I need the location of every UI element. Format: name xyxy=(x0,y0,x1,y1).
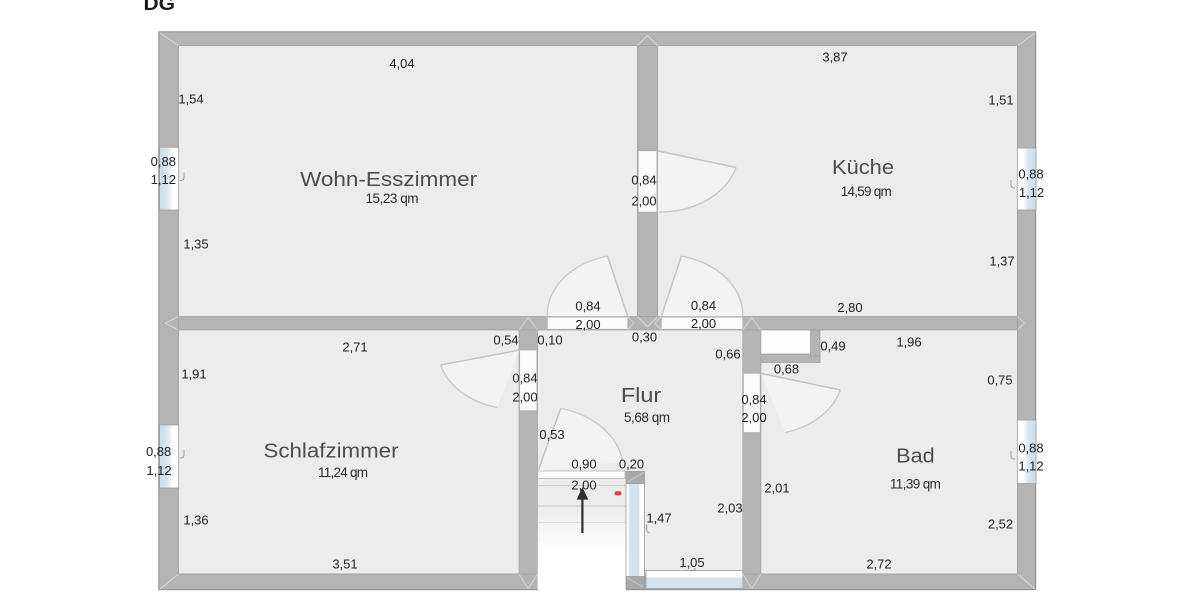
svg-text:0,54: 0,54 xyxy=(493,333,518,348)
svg-text:0,88: 0,88 xyxy=(146,444,171,459)
svg-text:1,05: 1,05 xyxy=(679,555,704,570)
svg-text:0,84: 0,84 xyxy=(575,299,600,314)
svg-text:2,52: 2,52 xyxy=(988,517,1013,532)
svg-text:0,20: 0,20 xyxy=(619,457,644,472)
svg-text:0,90: 0,90 xyxy=(571,457,596,472)
svg-text:11,24 qm: 11,24 qm xyxy=(318,465,368,480)
svg-text:0,84: 0,84 xyxy=(512,371,537,386)
svg-text:0,88: 0,88 xyxy=(1018,166,1043,181)
svg-text:1,96: 1,96 xyxy=(896,335,921,350)
svg-text:0,68: 0,68 xyxy=(774,362,799,377)
svg-text:Schlafzimmer: Schlafzimmer xyxy=(264,440,399,462)
svg-text:0,10: 0,10 xyxy=(537,333,562,348)
svg-text:2,00: 2,00 xyxy=(631,194,656,209)
svg-text:0,49: 0,49 xyxy=(820,339,845,354)
svg-text:5,68 qm: 5,68 qm xyxy=(624,410,670,425)
svg-text:2,71: 2,71 xyxy=(342,340,367,355)
svg-text:4,04: 4,04 xyxy=(389,56,414,71)
svg-text:Küche: Küche xyxy=(832,157,894,179)
svg-text:1,47: 1,47 xyxy=(646,511,671,526)
svg-text:1,12: 1,12 xyxy=(1019,185,1044,200)
svg-text:1,36: 1,36 xyxy=(183,513,208,528)
svg-text:0,88: 0,88 xyxy=(151,154,176,169)
svg-text:0,84: 0,84 xyxy=(691,298,716,313)
svg-text:2,01: 2,01 xyxy=(764,481,789,496)
svg-text:Flur: Flur xyxy=(621,385,662,407)
svg-text:1,91: 1,91 xyxy=(181,367,206,382)
svg-text:2,80: 2,80 xyxy=(837,300,862,315)
svg-text:15,23 qm: 15,23 qm xyxy=(366,191,419,206)
svg-text:1,12: 1,12 xyxy=(146,463,171,478)
svg-text:0,53: 0,53 xyxy=(539,427,564,442)
svg-text:Wohn-Esszimmer: Wohn-Esszimmer xyxy=(300,169,477,191)
svg-text:1,12: 1,12 xyxy=(1018,459,1043,474)
svg-text:2,00: 2,00 xyxy=(741,410,766,425)
svg-text:3,51: 3,51 xyxy=(332,557,357,572)
svg-text:2,00: 2,00 xyxy=(691,316,716,331)
svg-text:11,39 qm: 11,39 qm xyxy=(890,477,941,492)
svg-text:14,59 qm: 14,59 qm xyxy=(841,184,892,199)
svg-text:DG: DG xyxy=(144,0,176,15)
svg-text:0,66: 0,66 xyxy=(715,347,740,362)
svg-text:1,51: 1,51 xyxy=(988,93,1013,108)
svg-text:2,72: 2,72 xyxy=(866,557,891,572)
svg-text:3,87: 3,87 xyxy=(822,50,847,65)
svg-text:1,35: 1,35 xyxy=(183,237,208,252)
svg-text:1,54: 1,54 xyxy=(178,92,203,107)
svg-text:1,12: 1,12 xyxy=(151,172,176,187)
svg-text:0,84: 0,84 xyxy=(631,173,656,188)
svg-text:0,88: 0,88 xyxy=(1018,441,1043,456)
svg-text:0,75: 0,75 xyxy=(987,373,1012,388)
svg-text:1,37: 1,37 xyxy=(989,254,1014,269)
svg-text:0,84: 0,84 xyxy=(741,392,766,407)
svg-text:0,30: 0,30 xyxy=(632,330,657,345)
svg-text:2,03: 2,03 xyxy=(717,501,742,516)
svg-text:2,00: 2,00 xyxy=(571,478,596,493)
svg-text:2,00: 2,00 xyxy=(575,317,600,332)
svg-text:2,00: 2,00 xyxy=(512,390,537,405)
svg-text:Bad: Bad xyxy=(896,446,935,468)
